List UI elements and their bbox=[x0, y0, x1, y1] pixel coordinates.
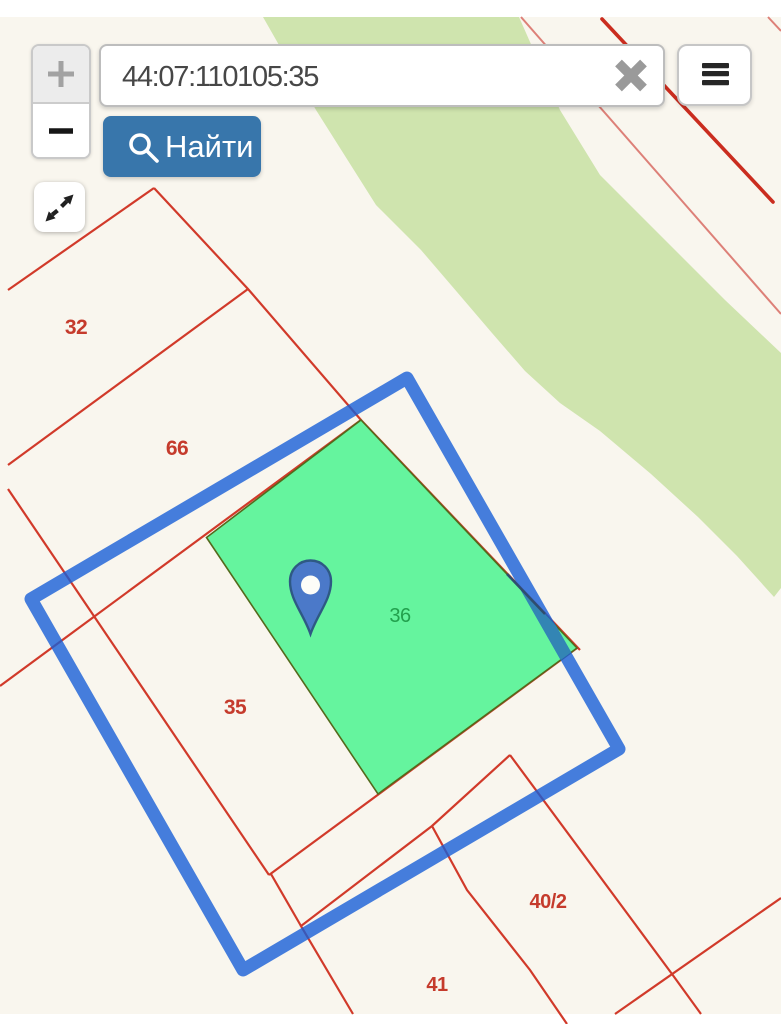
svg-text:36: 36 bbox=[389, 605, 411, 627]
svg-text:35: 35 bbox=[224, 696, 247, 719]
svg-text:66: 66 bbox=[166, 437, 188, 460]
svg-text:32: 32 bbox=[65, 316, 87, 339]
svg-text:41: 41 bbox=[426, 974, 448, 996]
svg-text:40/2: 40/2 bbox=[530, 891, 567, 913]
